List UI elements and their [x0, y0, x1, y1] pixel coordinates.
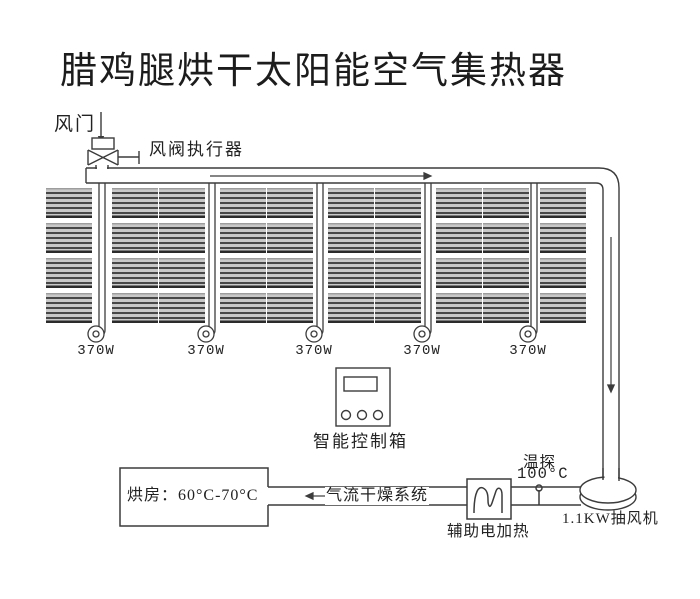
fan-power-label: 370W	[182, 344, 230, 359]
aux-heater-icon	[467, 479, 511, 519]
control-box-label: 智能控制箱	[313, 433, 408, 452]
fan-power-label: 370W	[398, 344, 446, 359]
fan-power-label: 370W	[290, 344, 338, 359]
control-box-icon	[336, 368, 390, 426]
pipe-flow-arrow-down-icon	[608, 237, 614, 392]
actuator-stem-icon	[118, 151, 139, 164]
fan-power-label: 370W	[72, 344, 120, 359]
damper-actuator-label: 风阀执行器	[149, 141, 244, 160]
duct-flow-arrow-left-icon	[306, 493, 327, 499]
diagram-title: 腊鸡腿烘干太阳能空气集热器	[60, 52, 567, 93]
temp-probe-value: 100°C	[517, 466, 569, 483]
temp-probe-icon	[536, 485, 542, 505]
collector-panel-grid	[46, 188, 586, 323]
exhaust-fan-label: 1.1KW抽风机	[562, 511, 659, 528]
aux-heater-label: 辅助电加热	[447, 523, 530, 540]
valve-duct-opening	[97, 166, 107, 170]
duct-flow-arrow-right-icon	[210, 173, 431, 179]
fan-power-label: 370W	[504, 344, 552, 359]
drying-room-label: 烘房：60°C-70°C	[127, 487, 258, 505]
air-duct-label: 气流干燥系统	[325, 487, 429, 505]
solar-collector-diagram: 腊鸡腿烘干太阳能空气集热器 风门 风阀执行器 370W 370W 370W 37…	[0, 0, 700, 599]
damper-label: 风门	[54, 115, 96, 136]
pipe-fan-junction	[605, 468, 619, 482]
